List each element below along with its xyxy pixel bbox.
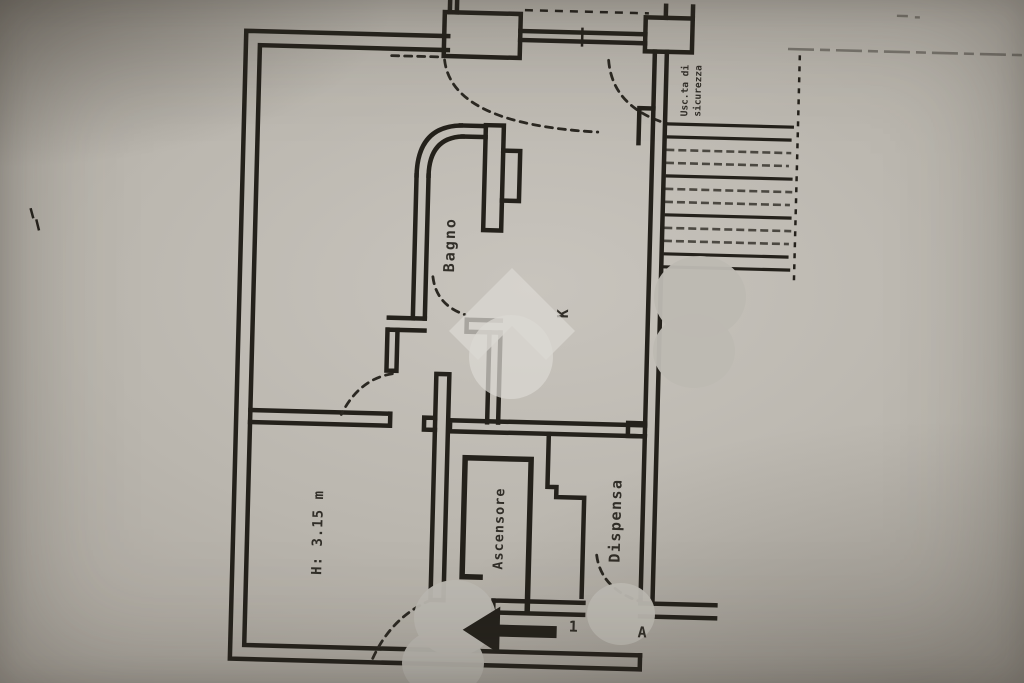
watermark-logo [449, 268, 575, 399]
label-bathroom: Bagno [440, 217, 459, 273]
redaction-blob [653, 314, 735, 388]
scan-mark [30, 208, 40, 230]
section-marker-a: A [637, 623, 646, 641]
door-threshold-dashed [392, 56, 444, 57]
floorplan-drawing: Bagno K Dispensa Ascensore H: 3.15 m Usc… [0, 0, 1024, 683]
stair-edge-dashed [794, 55, 800, 281]
balcony-edge-dashed [525, 10, 649, 13]
label-emergency-exit-line2: sicurezza [692, 65, 704, 117]
adjacent-structure-lines [788, 13, 1023, 55]
section-marker-1: 1 [569, 617, 578, 635]
door-arc-hall [341, 372, 392, 415]
label-pantry: Dispensa [605, 478, 625, 563]
door-arc-bathroom [432, 277, 466, 315]
watermark-circle-shape [469, 315, 553, 399]
label-emergency-exit-line1: Usc.ta di [679, 64, 691, 116]
door-arc-balcony [443, 60, 600, 132]
label-ceiling-height: H: 3.15 m [309, 490, 327, 575]
label-elevator: Ascensore [490, 487, 508, 570]
floorplan-photo: Bagno K Dispensa Ascensore H: 3.15 m Usc… [0, 0, 1024, 683]
